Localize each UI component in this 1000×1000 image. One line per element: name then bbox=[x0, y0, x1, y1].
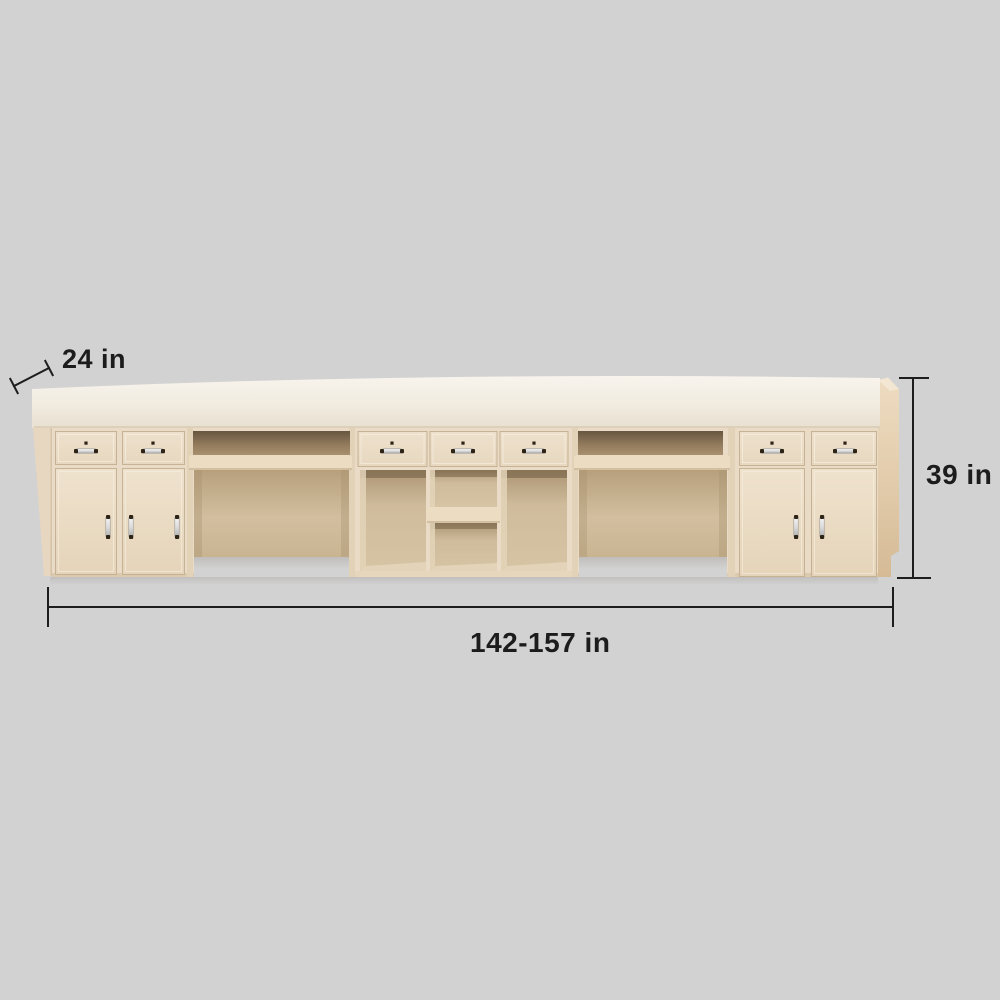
cubby-side-wall bbox=[430, 470, 435, 507]
drawer-front bbox=[740, 432, 805, 466]
knee-side-wall bbox=[572, 428, 578, 577]
cubby-opening bbox=[501, 470, 567, 572]
knee-vignette bbox=[719, 470, 727, 557]
door-handle bbox=[794, 515, 798, 539]
shelf-front-band bbox=[574, 455, 730, 470]
right-end-panel bbox=[878, 378, 899, 578]
cubby-shelf-edge bbox=[427, 521, 500, 523]
drawer-front bbox=[56, 432, 117, 465]
door-handle bbox=[129, 515, 133, 539]
left-end-panel-seam bbox=[51, 428, 53, 576]
door-handle bbox=[820, 515, 824, 539]
width-dimension-line bbox=[48, 588, 893, 626]
knee-vignette bbox=[579, 470, 587, 557]
door-handle bbox=[175, 515, 179, 539]
modesty-panel bbox=[579, 470, 727, 557]
depth-dimension-line bbox=[10, 361, 52, 393]
cubby-top-shadow bbox=[501, 470, 567, 478]
open-shelf-slot bbox=[578, 431, 723, 456]
cubby-side-wall bbox=[430, 523, 435, 572]
cubby-top-shadow bbox=[360, 470, 426, 478]
cubby-top-shadow bbox=[430, 523, 497, 529]
panel-shadow bbox=[194, 557, 349, 569]
open-shelf-slot bbox=[193, 431, 350, 456]
door-handle bbox=[106, 515, 110, 539]
ground-shadow bbox=[50, 577, 878, 585]
shelf-edge bbox=[574, 468, 730, 470]
cubby-opening bbox=[360, 470, 426, 572]
cubby-shelf bbox=[427, 507, 500, 523]
left-knee-space bbox=[187, 428, 355, 577]
shelf-front-band bbox=[189, 455, 352, 470]
product-dimension-diagram: 24 in 39 in 142-157 in bbox=[0, 0, 1000, 1000]
middle-unit bbox=[355, 432, 572, 578]
modesty-panel bbox=[194, 470, 349, 557]
knee-side-wall bbox=[187, 428, 193, 577]
middle-unit-bottom-rail bbox=[355, 571, 572, 577]
drawer-front bbox=[812, 432, 877, 466]
knee-vignette bbox=[194, 470, 202, 557]
right-knee-space bbox=[572, 428, 735, 577]
counter-illustration bbox=[0, 0, 1000, 1000]
knee-vignette bbox=[341, 470, 349, 557]
width-dimension-label: 142-157 in bbox=[470, 627, 610, 659]
left-end-panel bbox=[33, 428, 52, 576]
height-dimension-label: 39 in bbox=[926, 459, 992, 491]
cubby-top-shadow bbox=[430, 470, 497, 477]
shelf-edge bbox=[189, 468, 352, 470]
countertop bbox=[32, 376, 880, 428]
panel-shadow bbox=[579, 557, 727, 569]
cubby-side-wall bbox=[501, 470, 507, 572]
depth-dimension-label: 24 in bbox=[62, 344, 126, 375]
cubby-side-wall bbox=[360, 470, 366, 572]
drawer-front bbox=[123, 432, 185, 465]
knee-side-wall bbox=[728, 428, 735, 577]
